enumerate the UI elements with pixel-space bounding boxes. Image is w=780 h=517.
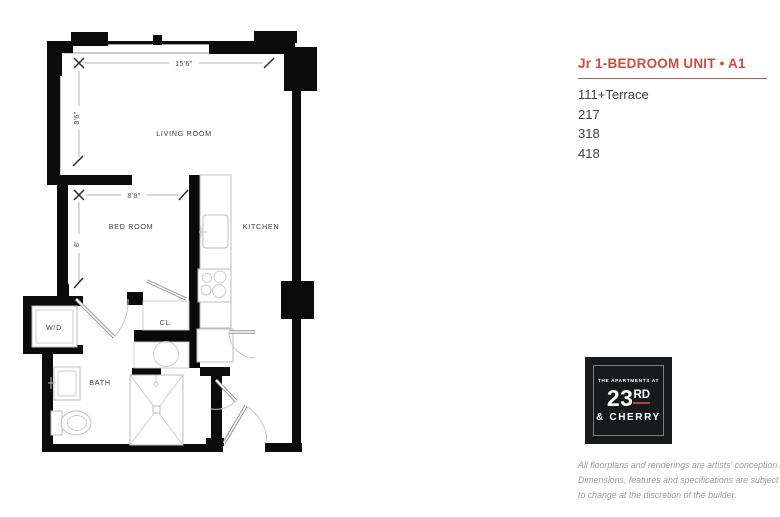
dimension-living-depth: 8'6" bbox=[73, 71, 83, 166]
kitchen-sink-icon bbox=[199, 215, 228, 248]
logo-street: & CHERRY bbox=[596, 412, 661, 423]
disclaimer-text: All floorplans and renderings are artist… bbox=[578, 458, 780, 503]
stove-icon bbox=[198, 269, 231, 302]
brand-logo: THE APARTMENTS AT 23RD & CHERRY bbox=[585, 357, 672, 444]
window-lines bbox=[60, 41, 284, 175]
label-living-room: LIVING ROOM bbox=[156, 129, 212, 138]
label-bath: BATH bbox=[89, 378, 110, 387]
disclaimer-line: Dimensions, features and specifications … bbox=[578, 473, 780, 488]
label-washer-dryer: W/D bbox=[46, 323, 62, 332]
unit-number: 418 bbox=[578, 144, 649, 164]
logo-tagline: THE APARTMENTS AT bbox=[598, 379, 659, 384]
disclaimer-line: to change at the discretion of the build… bbox=[578, 488, 780, 503]
label-kitchen: KITCHEN bbox=[243, 222, 279, 231]
dim-bed-depth: 8' bbox=[74, 241, 81, 247]
dim-living-depth: 8'6" bbox=[74, 111, 81, 124]
dimension-bed-depth: 8' bbox=[74, 202, 83, 288]
dimension-bed-width: 8'8" bbox=[74, 190, 188, 200]
unit-number: 111+Terrace bbox=[578, 85, 649, 105]
label-closet: CL bbox=[160, 318, 171, 327]
floorplan-page: 15'6" 8'6" 8'8" 8' LIVING ROOM BED ROOM … bbox=[0, 0, 780, 517]
unit-title: Jr 1-BEDROOM UNIT • A1 bbox=[578, 56, 767, 79]
dim-living-width: 15'6" bbox=[175, 61, 193, 68]
unit-number-list: 111+Terrace 217 318 418 bbox=[578, 85, 649, 163]
label-bed-room: BED ROOM bbox=[109, 222, 154, 231]
dimension-living-width: 15'6" bbox=[74, 58, 274, 68]
shower-icon bbox=[130, 375, 183, 445]
logo-name: 23RD bbox=[607, 387, 650, 410]
unit-number: 217 bbox=[578, 105, 649, 125]
logo-number-suffix: RD bbox=[633, 389, 650, 404]
logo-number: 23 bbox=[607, 385, 634, 411]
floorplan-drawing: 15'6" 8'6" 8'8" 8' LIVING ROOM BED ROOM … bbox=[0, 0, 470, 500]
toilet-icon bbox=[51, 411, 91, 435]
dim-bed-width: 8'8" bbox=[127, 193, 140, 200]
disclaimer-line: All floorplans and renderings are artist… bbox=[578, 458, 780, 473]
unit-number: 318 bbox=[578, 124, 649, 144]
logo-content: THE APARTMENTS AT 23RD & CHERRY bbox=[585, 357, 672, 444]
